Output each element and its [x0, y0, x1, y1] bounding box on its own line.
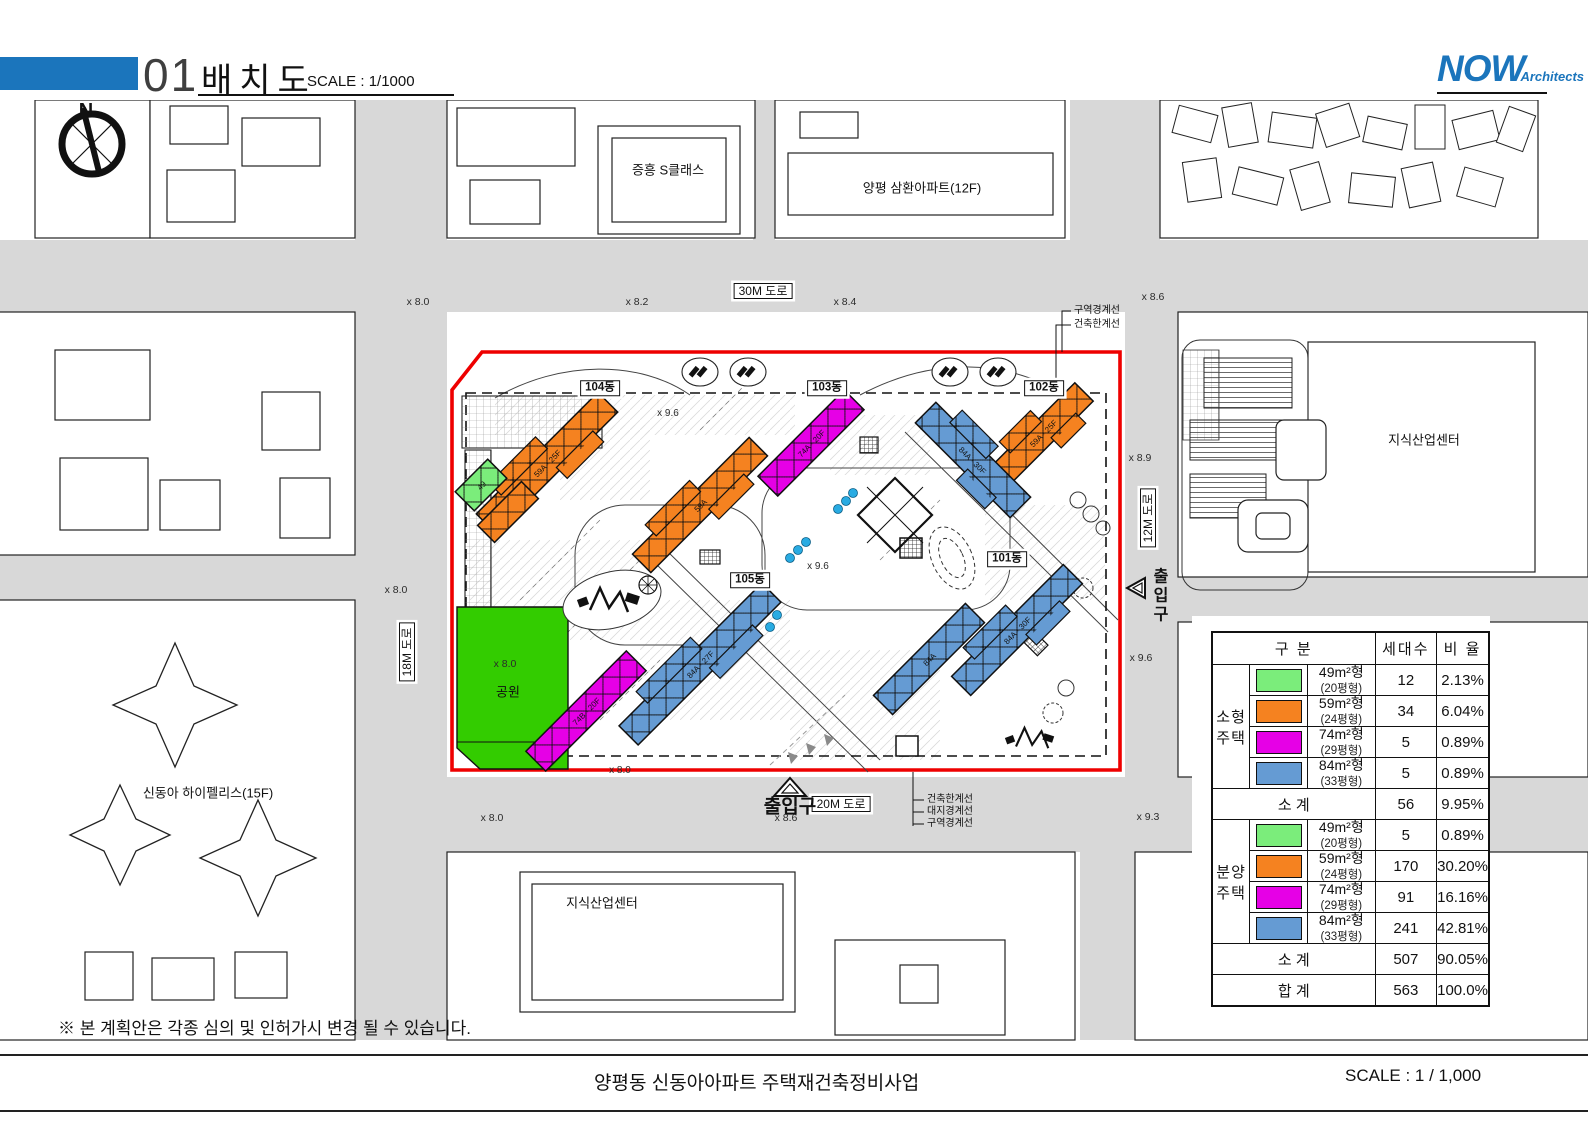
ratio-cell: 0.89%	[1437, 758, 1489, 789]
drawing-sheet: 59A · 25F4974A · 20F59A59A · 25F84A · 30…	[0, 0, 1588, 1122]
company-logo: NOWArchitects	[1437, 48, 1549, 90]
table-row: 59m²형(24평형) 34 6.04%	[1212, 696, 1489, 727]
ratio-cell: 6.04%	[1437, 696, 1489, 727]
title-underline	[198, 94, 454, 96]
footer-divider	[0, 1054, 1588, 1056]
ratio-cell: 16.16%	[1437, 882, 1489, 913]
color-swatch-cell	[1250, 758, 1308, 789]
unit-type-cell: 49m²형(20평형)	[1308, 665, 1376, 696]
unit-type-cell: 84m²형(33평형)	[1308, 758, 1376, 789]
table-row: 74m²형(29평형) 91 16.16%	[1212, 882, 1489, 913]
unit-summary-panel: 구 분 세대수 비 율소형주택 49m²형(20평형) 12 2.13% 59m…	[1192, 616, 1490, 1020]
unit-type-cell: 59m²형(24평형)	[1308, 851, 1376, 882]
unit-type-cell: 59m²형(24평형)	[1308, 696, 1376, 727]
subtotal-ratio: 90.05%	[1437, 944, 1489, 975]
unit-summary-table: 구 분 세대수 비 율소형주택 49m²형(20평형) 12 2.13% 59m…	[1211, 631, 1490, 1007]
ratio-cell: 0.89%	[1437, 820, 1489, 851]
road-west	[0, 555, 447, 600]
project-title: 양평동 신동아아파트 주택재건축정비사업	[594, 1068, 919, 1095]
table-header-row: 구 분 세대수 비 율	[1212, 632, 1489, 665]
title-block-header: 01 배치도 SCALE : 1/1000 NOWArchitects	[0, 0, 1588, 100]
units-cell: 34	[1375, 696, 1437, 727]
gate-pad	[896, 736, 918, 756]
revision-note: ※ 본 계획안은 각종 심의 및 인허가시 변경 될 수 있습니다.	[58, 1014, 471, 1039]
logo-underline	[1437, 92, 1547, 94]
road-north-branch	[1070, 100, 1160, 240]
color-swatch-cell	[1250, 820, 1308, 851]
fountain-icon	[639, 576, 657, 594]
footer-scale: SCALE : 1 / 1,000	[1345, 1066, 1481, 1086]
unit-type-cell: 84m²형(33평형)	[1308, 913, 1376, 944]
color-swatch-cell	[1250, 913, 1308, 944]
units-cell: 5	[1375, 820, 1437, 851]
table-row: 74m²형(29평형) 5 0.89%	[1212, 727, 1489, 758]
legend-swatch-blue	[1256, 762, 1302, 785]
units-cell: 91	[1375, 882, 1437, 913]
color-swatch-cell	[1250, 727, 1308, 758]
logo-main-text: NOW	[1437, 48, 1524, 89]
unit-type-cell: 74m²형(29평형)	[1308, 882, 1376, 913]
legend-swatch-orange	[1256, 855, 1302, 878]
title-scale: SCALE : 1/1000	[307, 73, 415, 90]
logo-sub-text: Architects	[1520, 69, 1584, 84]
ratio-cell: 2.13%	[1437, 665, 1489, 696]
color-swatch-cell	[1250, 882, 1308, 913]
legend-swatch-magenta	[1256, 731, 1302, 754]
ratio-cell: 30.20%	[1437, 851, 1489, 882]
col-header-units: 세대수	[1375, 632, 1437, 665]
unit-type-cell: 49m²형(20평형)	[1308, 820, 1376, 851]
total-row: 합 계 563 100.0%	[1212, 975, 1489, 1007]
group-name-cell: 분양주택	[1212, 820, 1250, 944]
road-south-branch	[1080, 852, 1135, 1040]
total-label: 합 계	[1212, 975, 1375, 1007]
total-units: 563	[1375, 975, 1437, 1007]
subtotal-row: 소 계 56 9.95%	[1212, 789, 1489, 820]
col-header-ratio: 비 율	[1437, 632, 1489, 665]
table-row: 분양주택 49m²형(20평형) 5 0.89%	[1212, 820, 1489, 851]
units-cell: 170	[1375, 851, 1437, 882]
table-row: 소형주택 49m²형(20평형) 12 2.13%	[1212, 665, 1489, 696]
table-row: 59m²형(24평형) 170 30.20%	[1212, 851, 1489, 882]
legend-swatch-orange	[1256, 700, 1302, 723]
units-cell: 5	[1375, 758, 1437, 789]
color-swatch-cell	[1250, 851, 1308, 882]
subtotal-units: 507	[1375, 944, 1437, 975]
legend-swatch-green	[1256, 669, 1302, 692]
ratio-cell: 0.89%	[1437, 727, 1489, 758]
group-name-cell: 소형주택	[1212, 665, 1250, 789]
subtotal-units: 56	[1375, 789, 1437, 820]
ratio-cell: 42.81%	[1437, 913, 1489, 944]
unit-type-cell: 74m²형(29평형)	[1308, 727, 1376, 758]
units-cell: 5	[1375, 727, 1437, 758]
header-accent-bar	[0, 57, 138, 90]
road-30m	[0, 240, 1588, 312]
color-swatch-cell	[1250, 665, 1308, 696]
legend-swatch-blue	[1256, 917, 1302, 940]
subtotal-label: 소 계	[1212, 944, 1375, 975]
units-cell: 12	[1375, 665, 1437, 696]
total-ratio: 100.0%	[1437, 975, 1489, 1007]
units-cell: 241	[1375, 913, 1437, 944]
sheet-bottom-border	[0, 1110, 1588, 1112]
table-row: 84m²형(33평형) 241 42.81%	[1212, 913, 1489, 944]
legend-swatch-green	[1256, 824, 1302, 847]
color-swatch-cell	[1250, 696, 1308, 727]
sheet-number: 01	[143, 48, 198, 102]
legend-swatch-magenta	[1256, 886, 1302, 909]
subtotal-row: 소 계 507 90.05%	[1212, 944, 1489, 975]
subtotal-label: 소 계	[1212, 789, 1375, 820]
road-north-alley	[753, 100, 775, 240]
subtotal-ratio: 9.95%	[1437, 789, 1489, 820]
col-header-category: 구 분	[1212, 632, 1375, 665]
table-row: 84m²형(33평형) 5 0.89%	[1212, 758, 1489, 789]
